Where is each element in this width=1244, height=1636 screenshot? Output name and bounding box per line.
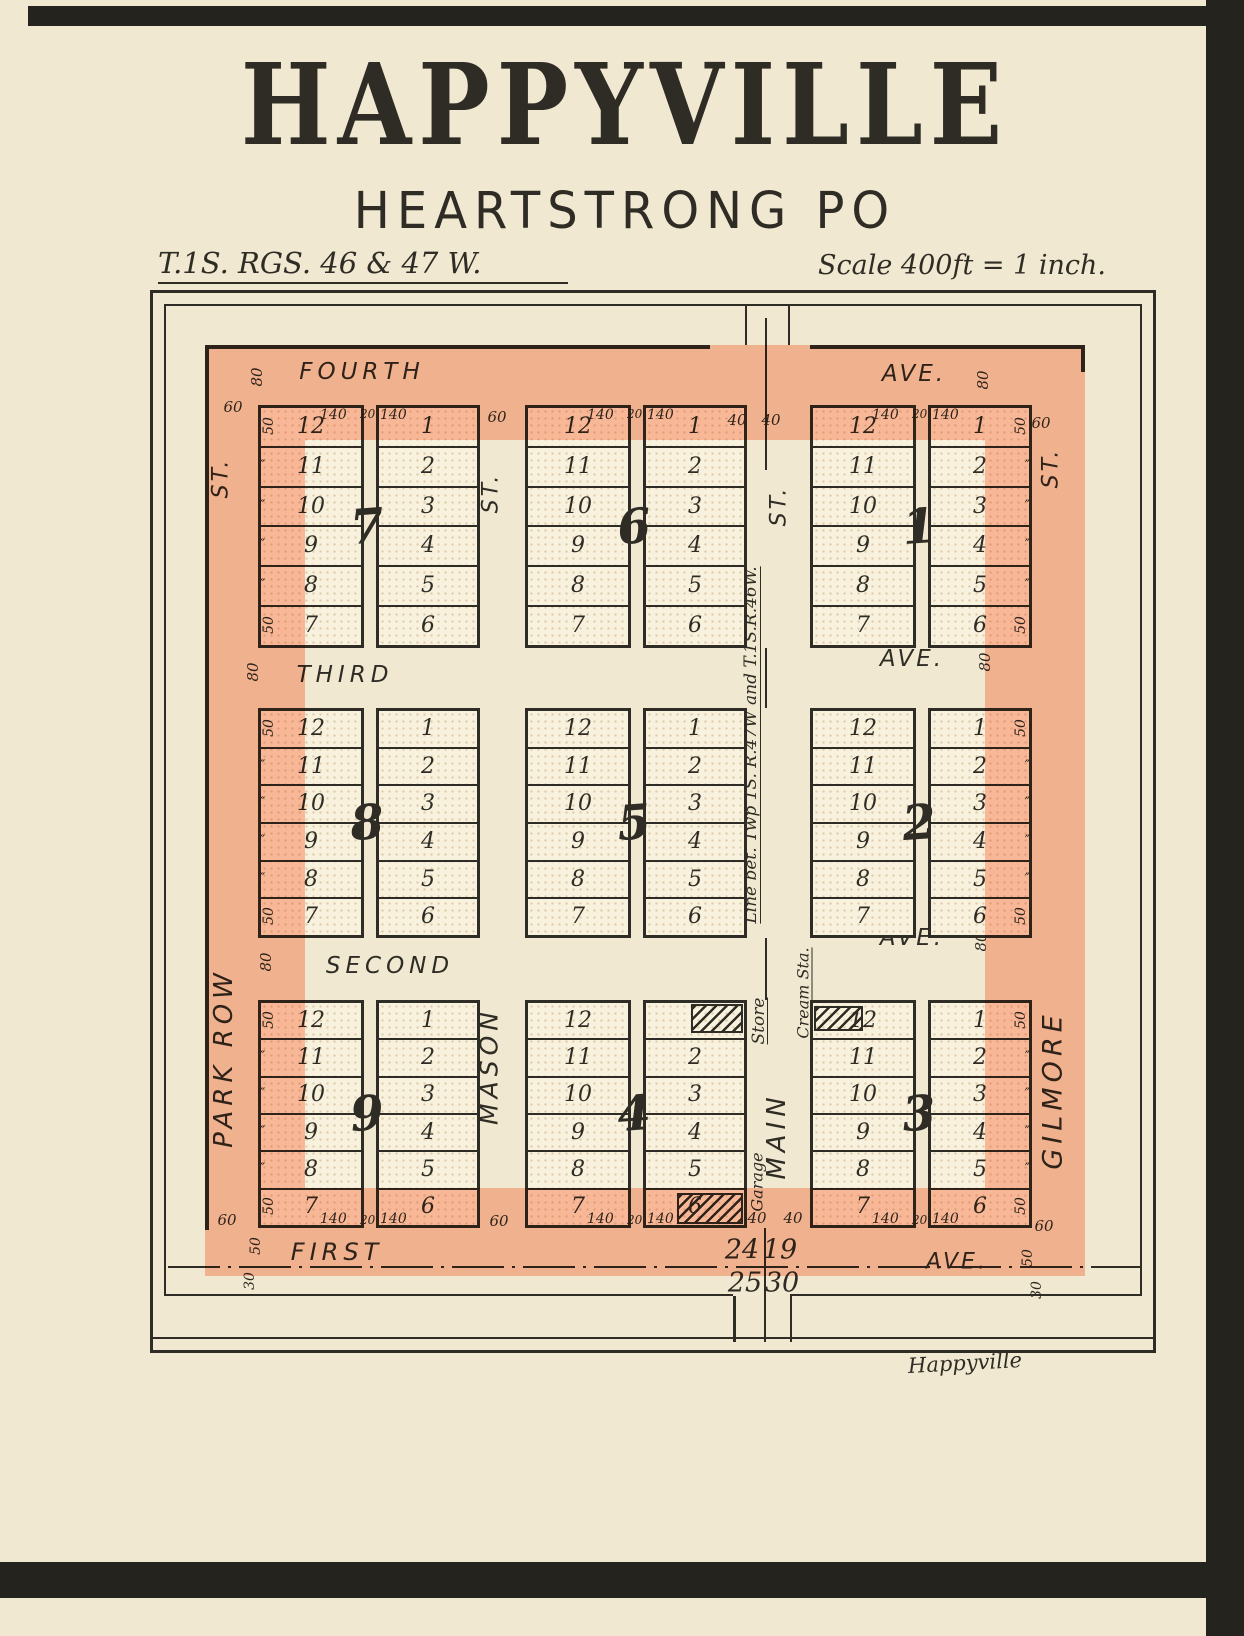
lot-number: 6: [973, 1194, 987, 1219]
page-title: HAPPYVILLE: [130, 40, 1120, 171]
lot-width-label: ″: [260, 1086, 265, 1102]
township-line-north: [765, 318, 767, 470]
lot-number: 8: [571, 573, 585, 598]
lot-number: 1: [421, 1008, 435, 1033]
mason-st-suffix: ST.: [479, 473, 504, 514]
lot: 8: [528, 565, 628, 605]
lot: 10″: [261, 784, 361, 822]
lot-width-label: ″: [260, 498, 265, 514]
lot-number: 12: [564, 1008, 592, 1033]
lot: 7: [528, 897, 628, 935]
first-avenue-suffix: AVE.: [926, 1250, 988, 1275]
block-9: 125011″10″9″8″750123456914020140: [258, 1000, 480, 1228]
lot-depth-label: 140: [932, 407, 959, 423]
garage-label: Garage: [748, 1152, 767, 1211]
lot: 5: [646, 860, 744, 898]
lot: 1: [646, 711, 744, 747]
lot-number: 4: [973, 533, 987, 558]
lot: 5″: [931, 1150, 1029, 1187]
plat-border-top-west: [205, 345, 710, 349]
lot: 11: [528, 1038, 628, 1075]
lot-depth-label: 140: [932, 1211, 959, 1227]
lot-width-label: ″: [260, 833, 265, 849]
lot: 6: [646, 897, 744, 935]
lot: 8″: [261, 1150, 361, 1187]
lot-number: 12: [297, 1008, 325, 1033]
lot-number: 3: [421, 1082, 435, 1107]
lot-number: 8: [571, 867, 585, 892]
lot: 5: [646, 1150, 744, 1187]
lot: 11″: [261, 446, 361, 486]
lot-width-label: ″: [1025, 1049, 1030, 1065]
block-2-right-tier: 1502″3″4″5″650: [928, 708, 1032, 938]
lot-number: 11: [297, 754, 325, 779]
lot: 1: [379, 1003, 477, 1038]
lot: 2: [379, 747, 477, 785]
section-number-30: 30: [765, 1268, 799, 1299]
lot-number: 10: [297, 494, 325, 519]
lot: 10: [528, 486, 628, 526]
lot: 150: [931, 1003, 1029, 1038]
lot: 9: [813, 525, 913, 565]
lot-depth-label: 140: [380, 1211, 407, 1227]
lot: 150: [931, 711, 1029, 747]
top-border-bar: [28, 6, 1206, 26]
lot: 3″: [931, 486, 1029, 526]
lot-number: 5: [688, 867, 702, 892]
township-line-third: [765, 648, 767, 708]
lot-number: 11: [564, 454, 592, 479]
lot: 5: [379, 565, 477, 605]
lot: 3: [379, 784, 477, 822]
lot-number: 7: [304, 904, 318, 929]
first-ave-fifty-east: 50: [1020, 1249, 1036, 1267]
lot-number: 10: [564, 494, 592, 519]
street-width-label: 60: [217, 1211, 236, 1229]
lot-number: 7: [856, 613, 870, 638]
lot: 2″: [931, 446, 1029, 486]
lot-number: 6: [421, 904, 435, 929]
lot-number: 2: [421, 1045, 435, 1070]
lot: 4″: [931, 822, 1029, 860]
lot: 10: [813, 486, 913, 526]
street-width-label: 40: [747, 1209, 766, 1227]
lot-number: 10: [564, 791, 592, 816]
lot-number: 7: [304, 1194, 318, 1219]
lot-number: 11: [564, 1045, 592, 1070]
lot: 4: [646, 1113, 744, 1150]
lot-number: 1: [421, 716, 435, 741]
block-1-left-tier: 121110987: [810, 405, 916, 648]
gilmore-street-label: GILMORE: [1038, 1010, 1069, 1169]
main-st-south-west-edge: [733, 1296, 736, 1342]
lot-number: 7: [856, 1194, 870, 1219]
lot: 2: [379, 446, 477, 486]
lot-number: 3: [421, 791, 435, 816]
block-3-right-tier: 1502″3″4″5″650: [928, 1000, 1032, 1228]
lot: 10: [813, 1076, 913, 1113]
lot: 8: [813, 565, 913, 605]
scale-note: Scale 400ft = 1 inch.: [818, 250, 1106, 281]
gilmore-st-suffix: ST.: [1039, 448, 1064, 489]
lot-number: 4: [688, 533, 702, 558]
lot-number: 6: [973, 613, 987, 638]
lot-number: 4: [688, 829, 702, 854]
block-4-right-tier: 23456: [643, 1000, 747, 1228]
inner-frame-right: [1140, 304, 1142, 1296]
lot: 6: [379, 605, 477, 645]
inner-frame-top: [164, 304, 1142, 306]
lot-number: 10: [849, 1082, 877, 1107]
lot: 10: [528, 784, 628, 822]
street-width-label: 60: [1034, 1217, 1053, 1235]
lot-width-label: ″: [1025, 1161, 1030, 1177]
block-8-right-tier: 123456: [376, 708, 480, 938]
block-3: 1211109871502″3″4″5″650314020140: [810, 1000, 1032, 1228]
block-number-4: 4: [615, 1085, 652, 1143]
lot-number: 8: [304, 1157, 318, 1182]
lot-number: 1: [973, 716, 987, 741]
lot-number: 4: [421, 1120, 435, 1145]
lot-depth-label: 140: [872, 407, 899, 423]
plat-border-top-east: [810, 345, 1085, 349]
frame-bottom-double-line: [150, 1337, 1153, 1339]
lot-number: 3: [688, 494, 702, 519]
main-street-label: MAIN: [762, 1092, 792, 1179]
lot: 11: [813, 747, 913, 785]
lot-width-label: 50: [261, 1197, 277, 1215]
lot: 4″: [931, 525, 1029, 565]
lot-number: 11: [849, 1045, 877, 1070]
block-number-9: 9: [348, 1085, 385, 1143]
block-number-5: 5: [615, 794, 652, 852]
block-4: 12111098723456414020140: [525, 1000, 747, 1228]
third-avenue-width-east: 80: [976, 652, 994, 671]
lot-number: 4: [688, 1120, 702, 1145]
lot-number: 2: [421, 754, 435, 779]
fourth-avenue-label: FOURTH: [299, 359, 425, 385]
lot: 1: [379, 711, 477, 747]
lot-number: 5: [973, 1157, 987, 1182]
fourth-avenue-width-east: 80: [974, 370, 992, 389]
lot-number: 9: [571, 829, 585, 854]
lot: 10: [813, 784, 913, 822]
lot-number: 1: [973, 414, 987, 439]
lot-number: 9: [571, 533, 585, 558]
lot-number: 5: [421, 1157, 435, 1182]
first-avenue-centerline: [168, 1266, 1140, 1268]
lot: 2: [379, 1038, 477, 1075]
lot-number: 10: [564, 1082, 592, 1107]
lot-number: 3: [973, 494, 987, 519]
block-8-left-tier: 125011″10″9″8″750: [258, 708, 364, 938]
fourth-avenue-suffix: AVE.: [882, 361, 946, 387]
lot: 3: [646, 1076, 744, 1113]
lot-number: 11: [564, 754, 592, 779]
lot: 3: [646, 486, 744, 526]
lot: 9″: [261, 1113, 361, 1150]
lot: 2: [646, 446, 744, 486]
lot: 10: [528, 1076, 628, 1113]
block-6-right-tier: 123456: [643, 405, 747, 648]
lot: 4″: [931, 1113, 1029, 1150]
lot-number: 5: [688, 1157, 702, 1182]
right-border-bar: [1206, 0, 1244, 1636]
main-st-north-west-edge: [745, 306, 747, 345]
block-5-left-tier: 121110987: [525, 708, 631, 938]
lot-number: 12: [297, 716, 325, 741]
lot-number: 9: [571, 1120, 585, 1145]
block-number-3: 3: [900, 1085, 937, 1143]
lot: 8″: [261, 565, 361, 605]
third-avenue-label: THIRD: [297, 662, 394, 688]
park-row-st-suffix: ST.: [209, 458, 234, 499]
lot-width-label: ″: [1025, 833, 1030, 849]
lot-number: 12: [564, 716, 592, 741]
township-range-note: T.1S. RGS. 46 & 47 W.: [158, 246, 568, 284]
lot: 3″: [931, 1076, 1029, 1113]
lot-number: 3: [421, 494, 435, 519]
street-width-label: 60: [487, 408, 506, 426]
lot-width-label: ″: [1025, 1124, 1030, 1140]
lot-width-label: ″: [1025, 498, 1030, 514]
store-label: Store: [749, 998, 769, 1045]
lot-number: 10: [297, 1082, 325, 1107]
lot: 1250: [261, 1003, 361, 1038]
block-5-right-tier: 123456: [643, 708, 747, 938]
third-avenue-width: 80: [244, 662, 262, 681]
lot: 8: [813, 860, 913, 898]
township-line-second: [765, 938, 767, 1000]
lot-number: 7: [571, 613, 585, 638]
lot: 7: [813, 897, 913, 935]
lot: 3: [379, 1076, 477, 1113]
lot-number: 4: [421, 829, 435, 854]
block-7-left-tier: 125011″10″9″8″750: [258, 405, 364, 648]
lot-width-label: ″: [1025, 795, 1030, 811]
lot-depth-label: 140: [647, 1211, 674, 1227]
lot: 9: [528, 525, 628, 565]
block-1-right-tier: 1502″3″4″5″650: [928, 405, 1032, 648]
lot-width-label: ″: [260, 1049, 265, 1065]
lot-number: 11: [297, 1045, 325, 1070]
lot-number: 2: [973, 1045, 987, 1070]
lot-number: 10: [297, 791, 325, 816]
lot-number: 1: [688, 716, 702, 741]
first-ave-thirty-east: 30: [1029, 1281, 1045, 1299]
lot-width-label: 50: [261, 719, 277, 737]
main-st-north-east-edge: [788, 306, 790, 345]
lot-number: 8: [856, 867, 870, 892]
lot-number: 2: [421, 454, 435, 479]
second-avenue-width: 80: [257, 952, 275, 971]
lot: 12: [528, 711, 628, 747]
first-ave-fifty-west: 50: [248, 1237, 264, 1255]
alley-width-label: 20: [912, 407, 927, 421]
lot-number: 5: [973, 867, 987, 892]
lot-width-label: 50: [261, 907, 277, 925]
lot-depth-label: 140: [320, 407, 347, 423]
lot-number: 9: [304, 533, 318, 558]
lot: 1250: [261, 711, 361, 747]
lot-number: 7: [856, 904, 870, 929]
lot-number: 8: [856, 1157, 870, 1182]
fourth-avenue-width: 80: [248, 367, 266, 386]
lot: 3″: [931, 784, 1029, 822]
block-8: 125011″10″9″8″7501234568: [258, 708, 480, 938]
lot-width-label: ″: [1025, 871, 1030, 887]
lot-number: 2: [688, 454, 702, 479]
building-cream_station: [814, 1006, 863, 1031]
lot: 11″: [261, 747, 361, 785]
lot: 11: [528, 747, 628, 785]
street-width-label: 40: [727, 411, 746, 429]
block-5: 1211109871234565: [525, 708, 747, 938]
lot-number: 5: [688, 573, 702, 598]
building-garage: [677, 1193, 743, 1224]
lot: 8: [528, 860, 628, 898]
lot-number: 6: [688, 904, 702, 929]
alley-width-label: 20: [627, 1213, 642, 1227]
lot-width-label: 50: [1013, 719, 1029, 737]
street-width-label: 60: [489, 1212, 508, 1230]
alley-width-label: 20: [360, 407, 375, 421]
lot: 9: [528, 822, 628, 860]
lot-width-label: ″: [260, 458, 265, 474]
lot-width-label: ″: [260, 537, 265, 553]
lot-number: 1: [688, 414, 702, 439]
bottom-border-bar: [0, 1562, 1206, 1598]
building-store: [691, 1004, 743, 1033]
lot: 750: [261, 897, 361, 935]
lot-number: 11: [849, 754, 877, 779]
page-subtitle: HEARTSTRONG PO: [160, 182, 1090, 241]
lot-number: 6: [421, 1194, 435, 1219]
lot: 11″: [261, 1038, 361, 1075]
lot-width-label: 50: [1013, 1197, 1029, 1215]
lot: 10″: [261, 1076, 361, 1113]
lot-width-label: 50: [261, 417, 277, 435]
lot: 5: [379, 860, 477, 898]
lot: 9: [813, 1113, 913, 1150]
block-4-left-tier: 121110987: [525, 1000, 631, 1228]
block-9-left-tier: 125011″10″9″8″750: [258, 1000, 364, 1228]
lot: 650: [931, 605, 1029, 645]
lot: 12: [528, 1003, 628, 1038]
lot-number: 9: [856, 829, 870, 854]
lot-number: 11: [849, 454, 877, 479]
lot-number: 3: [973, 791, 987, 816]
street-width-label: 40: [761, 411, 780, 429]
inner-frame-bottom-east: [790, 1294, 1142, 1296]
lot-width-label: ″: [260, 1161, 265, 1177]
lot-number: 9: [856, 1120, 870, 1145]
lot-depth-label: 140: [587, 407, 614, 423]
block-6: 121110987123456614020140: [525, 405, 747, 648]
lot-number: 9: [304, 1120, 318, 1145]
lot: 3: [646, 784, 744, 822]
lot-number: 11: [297, 454, 325, 479]
section-number-24: 24: [725, 1235, 759, 1266]
lot: 2″: [931, 1038, 1029, 1075]
lot: 4: [379, 822, 477, 860]
lot-number: 4: [973, 1120, 987, 1145]
lot: 6: [379, 897, 477, 935]
lot-number: 3: [973, 1082, 987, 1107]
lot-number: 2: [973, 754, 987, 779]
alley-width-label: 20: [912, 1213, 927, 1227]
block-9-right-tier: 123456: [376, 1000, 480, 1228]
block-1: 1211109871502″3″4″5″650114020140: [810, 405, 1032, 648]
lot-number: 10: [849, 791, 877, 816]
lot: 4: [646, 525, 744, 565]
street-width-label: 40: [783, 1209, 802, 1227]
lot-width-label: ″: [260, 758, 265, 774]
lot: 5″: [931, 860, 1029, 898]
plat-border-east: [1081, 345, 1085, 372]
lot-depth-label: 140: [647, 407, 674, 423]
inner-frame-left: [164, 304, 166, 1296]
lot-number: 6: [973, 904, 987, 929]
block-7: 125011″10″9″8″750123456714020140: [258, 405, 480, 648]
block-number-1: 1: [900, 497, 937, 555]
lot: 2: [646, 1038, 744, 1075]
lot-number: 7: [304, 613, 318, 638]
block-number-7: 7: [348, 497, 385, 555]
lot-number: 2: [688, 754, 702, 779]
block-2-left-tier: 121110987: [810, 708, 916, 938]
lot-number: 5: [421, 867, 435, 892]
lot: 8″: [261, 860, 361, 898]
lot-width-label: ″: [1025, 1086, 1030, 1102]
third-avenue-suffix: AVE.: [880, 646, 944, 672]
lot-depth-label: 140: [380, 407, 407, 423]
lot-depth-label: 140: [320, 1211, 347, 1227]
lot-depth-label: 140: [587, 1211, 614, 1227]
block-2: 1211109871502″3″4″5″6502: [810, 708, 1032, 938]
plat-map-page: { "page": { "title": "HAPPYVILLE", "subt…: [0, 0, 1244, 1636]
lot: 12: [813, 1003, 913, 1038]
lot: 2″: [931, 747, 1029, 785]
lot-number: 8: [571, 1157, 585, 1182]
lot-width-label: 50: [261, 1011, 277, 1029]
lot-number: 6: [421, 613, 435, 638]
lot-number: 7: [571, 1194, 585, 1219]
park-row-street-label: PARK ROW: [209, 968, 239, 1148]
lot: 11: [528, 446, 628, 486]
block-6-left-tier: 121110987: [525, 405, 631, 648]
block-7-right-tier: 123456: [376, 405, 480, 648]
lot: 750: [261, 605, 361, 645]
section-number-25: 25: [728, 1268, 762, 1299]
lot: 9″: [261, 822, 361, 860]
lot: 12: [813, 711, 913, 747]
lot-number: 6: [688, 613, 702, 638]
lot: 9: [813, 822, 913, 860]
lot-width-label: ″: [1025, 577, 1030, 593]
lot-number: 10: [849, 494, 877, 519]
lot: 6: [646, 605, 744, 645]
lot: 10″: [261, 486, 361, 526]
lot-number: 5: [973, 573, 987, 598]
lot: 8: [528, 1150, 628, 1187]
lot-number: 9: [856, 533, 870, 558]
lot: 2: [646, 747, 744, 785]
lot: 8: [813, 1150, 913, 1187]
block-number-2: 2: [900, 794, 937, 852]
street-width-label: 60: [1031, 414, 1050, 432]
lot-number: 5: [421, 573, 435, 598]
